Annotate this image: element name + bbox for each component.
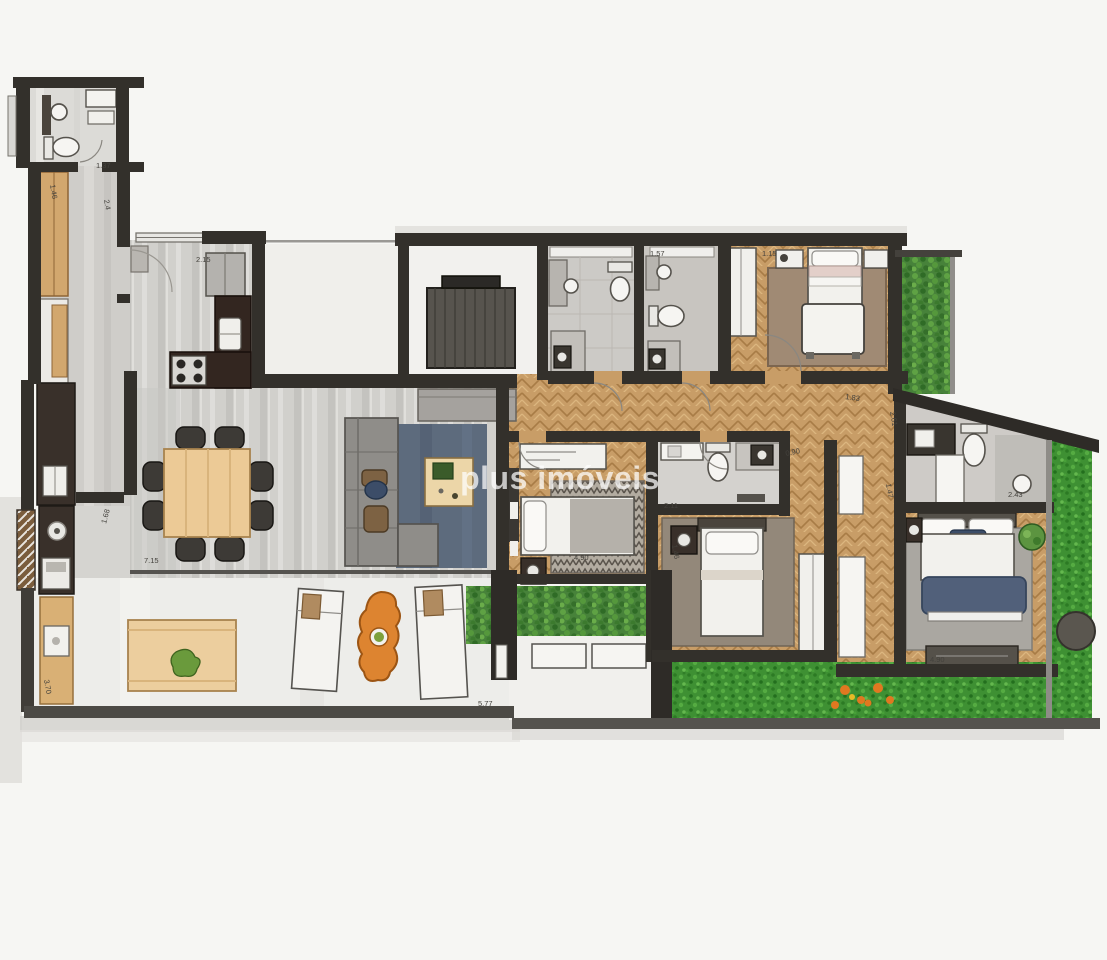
- svg-text:2.43: 2.43: [1008, 490, 1023, 499]
- svg-text:2.11: 2.11: [664, 501, 678, 510]
- svg-text:1.57: 1.57: [650, 249, 665, 258]
- svg-text:4.90: 4.90: [930, 655, 945, 664]
- svg-text:5.77: 5.77: [478, 699, 493, 708]
- svg-text:1.15: 1.15: [762, 249, 777, 258]
- svg-text:1.37: 1.37: [96, 161, 111, 170]
- svg-text:4.90: 4.90: [574, 553, 589, 562]
- svg-text:plus imóveis: plus imóveis: [460, 460, 660, 496]
- svg-text:7.15: 7.15: [144, 556, 159, 565]
- svg-text:2.15: 2.15: [196, 255, 211, 264]
- svg-text:2.4: 2.4: [102, 199, 113, 211]
